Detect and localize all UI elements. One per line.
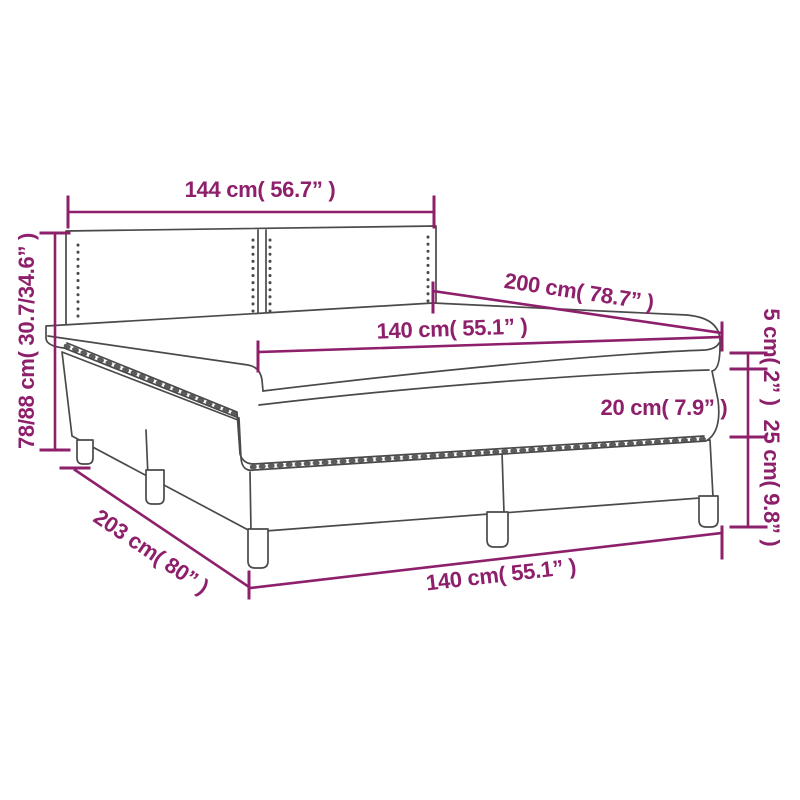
leg bbox=[487, 512, 508, 547]
leg bbox=[699, 496, 718, 527]
leg bbox=[77, 440, 93, 464]
leg bbox=[248, 529, 268, 568]
leg bbox=[146, 470, 164, 504]
dim-label-base-height: 25 cm( 9.8” ) bbox=[758, 420, 784, 547]
dim-label-bed-height: 78/88 cm( 30.7/34.6” ) bbox=[14, 233, 40, 449]
bed-dimension-diagram: 144 cm( 56.7” ) 78/88 cm( 30.7/34.6” ) 2… bbox=[0, 0, 800, 800]
dim-label-topper-height: 5 cm( 2” ) bbox=[758, 308, 784, 405]
dim-label-mattress-height: 20 cm( 7.9” ) bbox=[601, 395, 728, 421]
dim-label-mattress-width: 140 cm( 55.1” ) bbox=[376, 313, 528, 344]
dim-label-headboard-width: 144 cm( 56.7” ) bbox=[185, 177, 336, 203]
